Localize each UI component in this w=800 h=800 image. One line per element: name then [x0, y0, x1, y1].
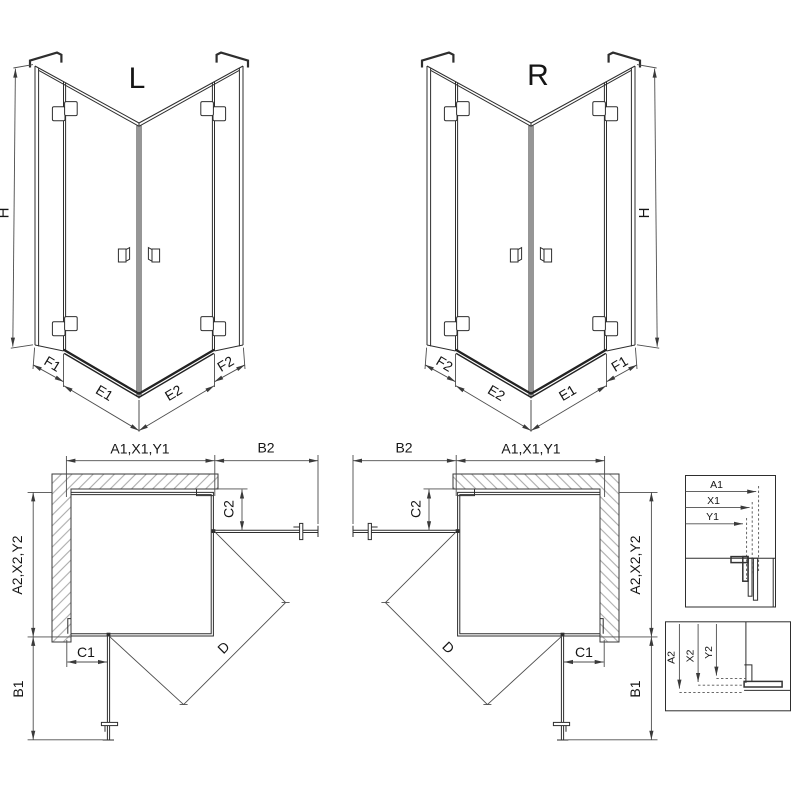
- dim-label-h-right: H: [636, 208, 653, 219]
- dim-label-b1-plan-left: B1: [10, 680, 26, 697]
- dim-label-b1-plan-right: B1: [627, 680, 643, 697]
- dim-label-b2-plan-right: B2: [395, 440, 412, 456]
- dim-label-h-left: H: [0, 208, 13, 219]
- variant-label-left: L: [129, 62, 146, 95]
- dim-label-a1-plan-right: A1,X1,Y1: [501, 441, 560, 457]
- dim-label-e1-left: E1: [93, 381, 116, 404]
- detail-label-y2: Y2: [703, 646, 715, 659]
- dim-label-f1-right: F1: [608, 353, 630, 375]
- dim-label-b2-plan-left: B2: [257, 440, 274, 456]
- plan-view-left: A1,X1,Y1 B2 C2 A2,X2,Y2 C1 B1 D: [9, 440, 318, 741]
- technical-drawing: L H F1 E1 E2 F2 R H F2 E2 E1 F1 A1,X1,Y1…: [0, 0, 800, 800]
- dim-label-c2-plan-right: C2: [408, 500, 424, 518]
- iso-view-right: R H F2 E2 E1 F1: [422, 53, 659, 432]
- detail-label-a1: A1: [710, 479, 723, 491]
- dim-label-e2-right: E2: [485, 381, 508, 404]
- plan-view-right: B2 A1,X1,Y1 C2 A2,X2,Y2 C1 B1 D: [353, 440, 658, 741]
- detail-label-a2: A2: [665, 651, 677, 664]
- dim-label-d-plan-left: D: [214, 638, 232, 656]
- dim-label-e1-right: E1: [556, 381, 579, 404]
- dim-label-a2-plan-right: A2,X2,Y2: [627, 535, 643, 594]
- detail-label-y1: Y1: [706, 511, 719, 523]
- dim-label-a1-plan-left: A1,X1,Y1: [110, 441, 169, 457]
- dim-label-a2-plan-left: A2,X2,Y2: [9, 535, 25, 594]
- variant-label-right: R: [527, 59, 549, 92]
- dim-label-c1-plan-left: C1: [77, 644, 95, 660]
- detail-label-x1: X1: [707, 495, 720, 507]
- detail-label-x2: X2: [685, 649, 697, 662]
- dim-label-e2-left: E2: [162, 381, 185, 404]
- detail-box-top: A1 X1 Y1: [686, 476, 776, 608]
- iso-view-left: L H F1 E1 E2 F2: [0, 53, 248, 432]
- dim-label-d-plan-right: D: [439, 638, 457, 656]
- detail-box-bottom: A2 X2 Y2: [665, 622, 790, 711]
- dim-label-c1-plan-right: C1: [575, 644, 593, 660]
- dim-label-c2-plan-left: C2: [221, 500, 237, 518]
